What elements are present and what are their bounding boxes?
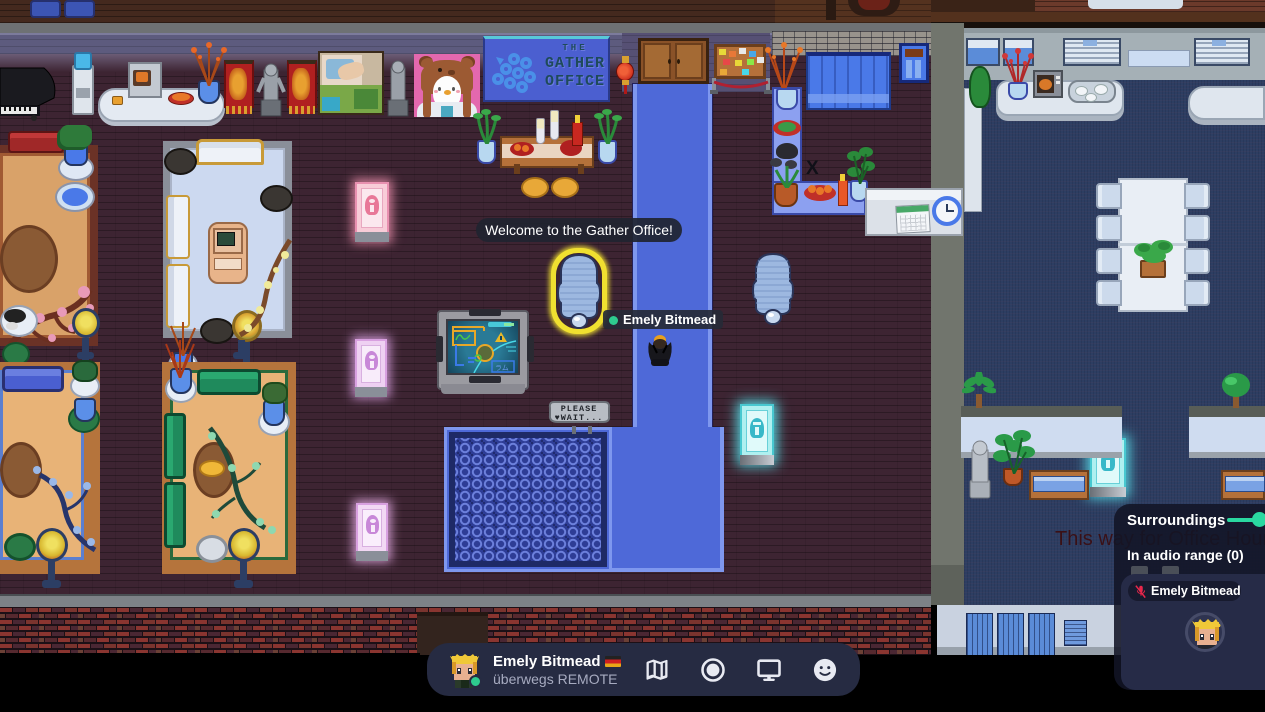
svg-text:ラム: ラム — [495, 364, 509, 373]
svg-text:♥WAIT...: ♥WAIT... — [555, 413, 604, 423]
